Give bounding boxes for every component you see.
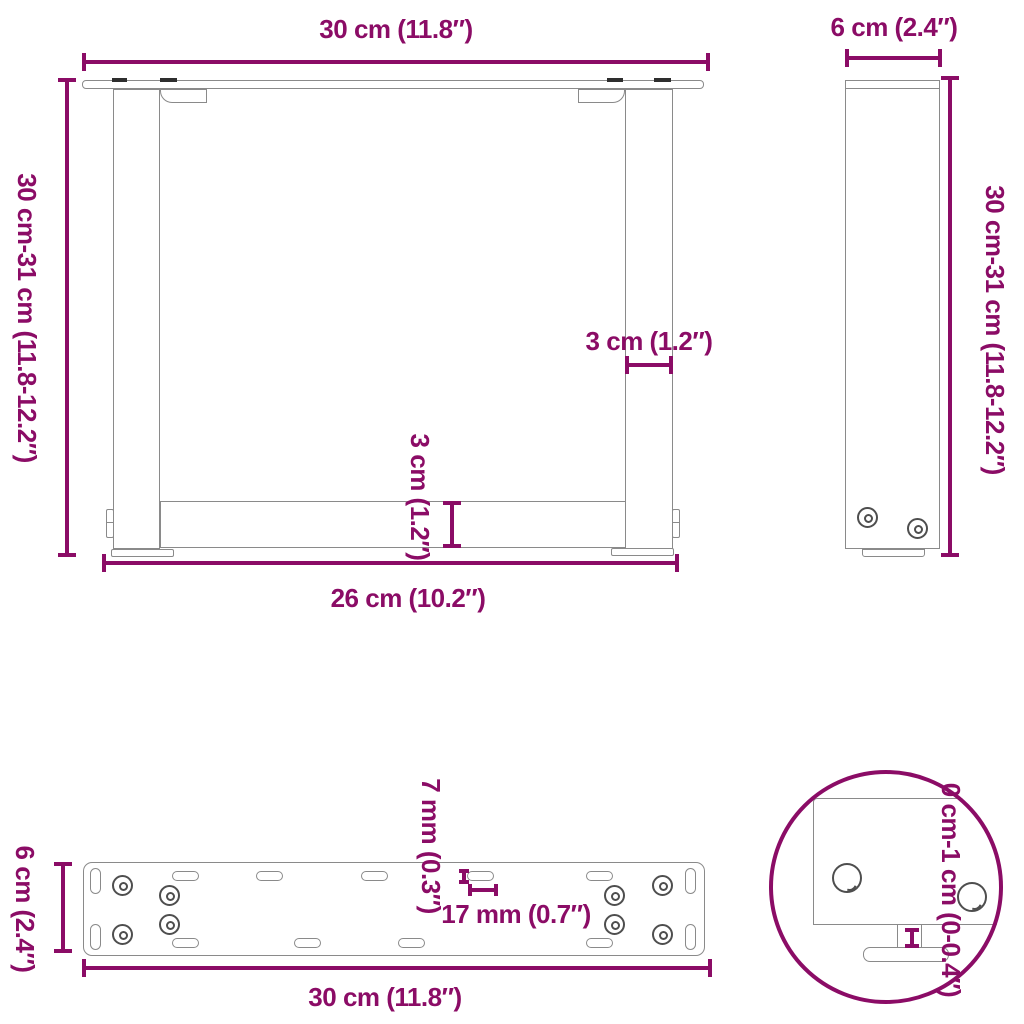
adjust-range-label: 0 cm-1 cm (0-0.4″) — [938, 783, 964, 997]
detail-view: 0 cm-1 cm (0-0.4″) — [0, 0, 1024, 1024]
product-dimension-diagram: 30 cm (11.8″) 30 cm-31 cm (11.8-12.2″) 3… — [0, 0, 1024, 1024]
adjust-range-dimension-line — [910, 928, 914, 948]
detail-circle — [769, 770, 1003, 1004]
